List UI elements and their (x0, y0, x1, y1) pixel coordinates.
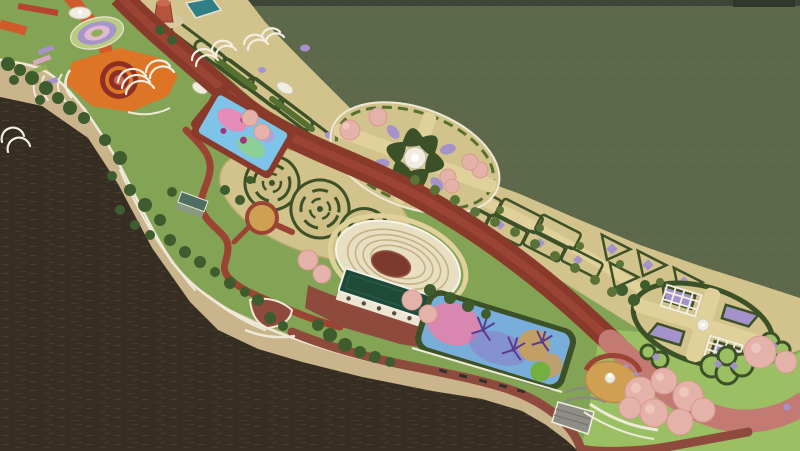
park-render (0, 0, 800, 451)
path-node-circle (247, 203, 277, 233)
park-render-canvas (0, 0, 800, 451)
lawn-fountain (69, 7, 91, 19)
horizon-object (733, 0, 795, 7)
fountain-sculpture (608, 373, 612, 377)
